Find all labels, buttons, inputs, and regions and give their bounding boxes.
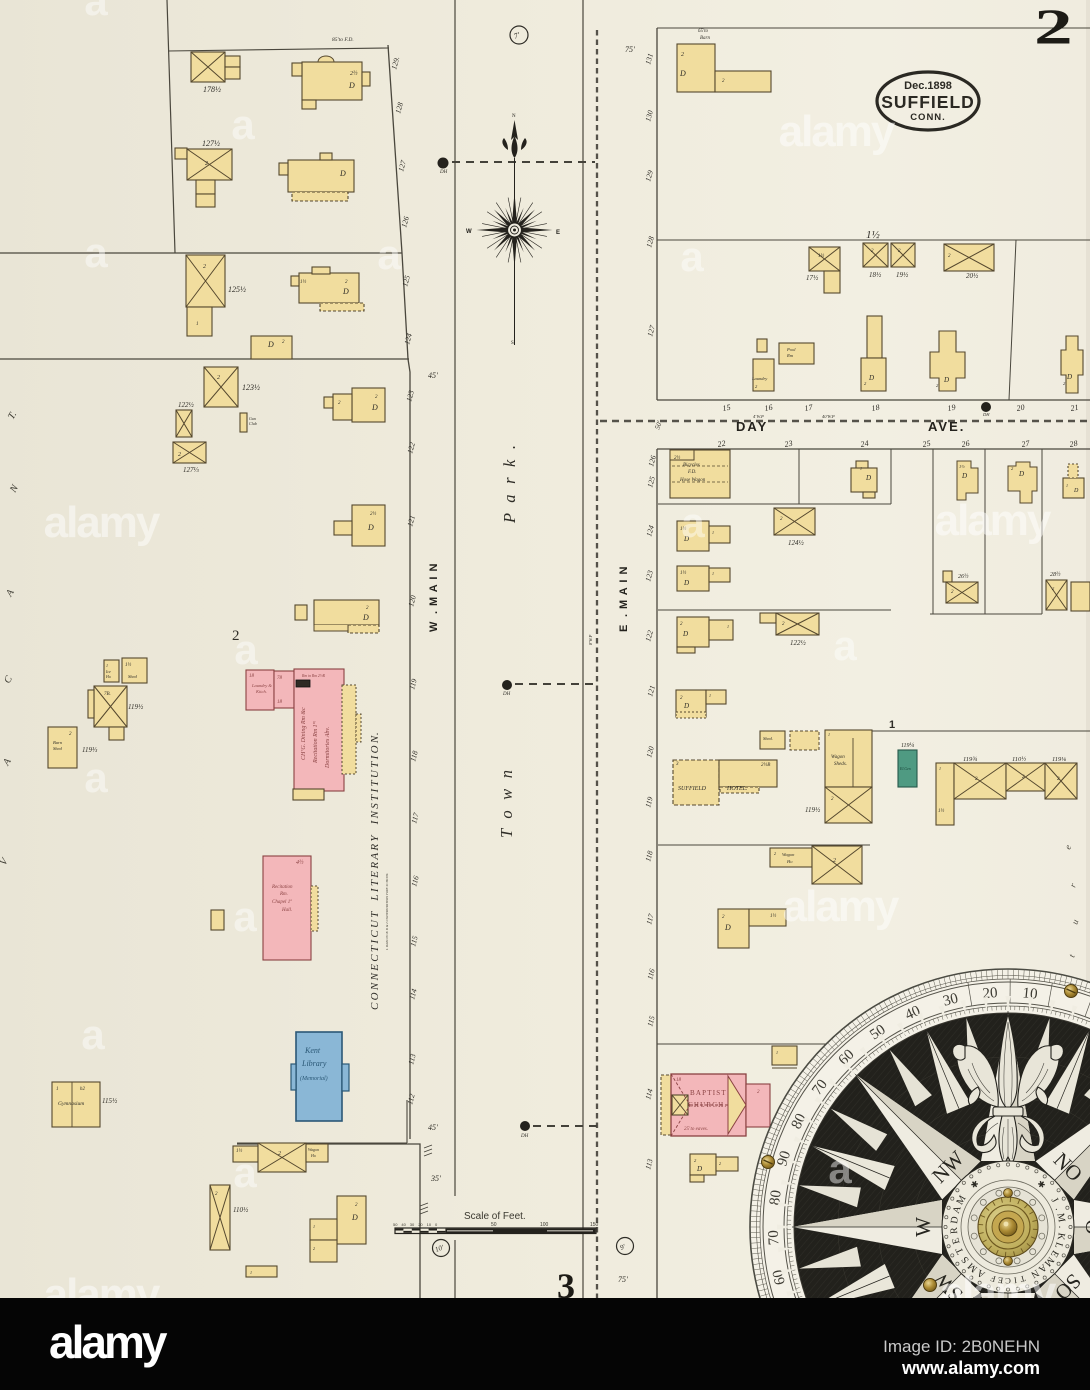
svg-text:115½: 115½: [102, 1097, 118, 1105]
svg-text:22: 22: [717, 439, 726, 449]
svg-text:1: 1: [828, 732, 830, 737]
svg-text:1: 1: [776, 1050, 778, 1055]
svg-text:D: D: [961, 472, 967, 480]
svg-text:20: 20: [418, 1222, 423, 1227]
svg-text:1: 1: [196, 322, 199, 327]
svg-text:Wagon: Wagon: [831, 755, 845, 760]
svg-text:SUFFIELD: SUFFIELD: [881, 92, 975, 112]
svg-text:Dec.1898: Dec.1898: [904, 80, 952, 92]
svg-text:a: a: [233, 893, 257, 940]
svg-text:Scale of Feet.: Scale of Feet.: [464, 1211, 526, 1222]
svg-text:Image ID: 2B0NEHN: Image ID: 2B0NEHN: [883, 1337, 1040, 1356]
svg-text:D: D: [682, 630, 688, 638]
svg-text:Laundry &: Laundry &: [251, 683, 272, 688]
svg-text:2½: 2½: [350, 70, 358, 77]
svg-text:M A I N: M A I N: [618, 566, 630, 609]
svg-text:2½B: 2½B: [761, 763, 770, 768]
svg-text:75': 75': [618, 1275, 628, 1284]
svg-text:DH: DH: [439, 170, 448, 175]
svg-text:1½: 1½: [125, 663, 132, 668]
svg-text:DAY: DAY: [736, 419, 768, 434]
svg-text:h2: h2: [80, 1087, 86, 1092]
svg-text:Gymnasium: Gymnasium: [58, 1101, 84, 1107]
svg-text:20½: 20½: [966, 272, 979, 280]
svg-text:18: 18: [277, 700, 283, 705]
svg-text:M A I N: M A I N: [428, 563, 440, 606]
svg-text:R: R: [949, 1227, 960, 1235]
svg-text:127½: 127½: [202, 139, 220, 148]
svg-text:50: 50: [393, 1222, 398, 1227]
svg-text:.: .: [428, 611, 440, 614]
svg-text:15: 15: [722, 403, 731, 413]
svg-text:45': 45': [428, 1123, 438, 1132]
svg-text:1: 1: [860, 466, 862, 471]
svg-text:178½: 178½: [203, 85, 221, 94]
svg-text:.: .: [1056, 1226, 1067, 1229]
svg-text:DH: DH: [502, 692, 511, 697]
svg-text:Wagon: Wagon: [782, 852, 795, 857]
svg-text:1: 1: [712, 530, 714, 535]
svg-text:a: a: [681, 499, 705, 546]
svg-text:D: D: [362, 613, 369, 622]
svg-text:T o w n: T o w n: [497, 767, 516, 838]
svg-text:25: 25: [922, 439, 931, 449]
svg-text:123½: 123½: [242, 383, 260, 392]
svg-text:DH: DH: [982, 412, 990, 417]
svg-text:D: D: [949, 1216, 961, 1225]
svg-text:1: 1: [712, 571, 714, 576]
svg-text:1: 1: [939, 766, 941, 771]
svg-text:a: a: [833, 622, 857, 669]
svg-text:C O N N E C T I C U T L I T: C O N N E C T I C U T L I T E R A R Y I …: [369, 732, 381, 1010]
svg-text:D: D: [679, 69, 686, 78]
svg-text:2: 2: [681, 52, 684, 58]
svg-text:Shed.: Shed.: [763, 736, 773, 741]
svg-text:Hall.: Hall.: [281, 908, 292, 913]
svg-text:122½: 122½: [790, 639, 807, 647]
svg-text:50: 50: [491, 1222, 497, 1228]
svg-text:D: D: [1073, 488, 1079, 494]
svg-text:65'to: 65'to: [698, 29, 708, 34]
svg-text:2½: 2½: [674, 456, 681, 461]
svg-text:a: a: [680, 233, 704, 280]
svg-text:1: 1: [709, 693, 711, 698]
svg-text:18: 18: [676, 1078, 682, 1083]
svg-text:1: 1: [106, 663, 108, 668]
svg-text:Hose Wagon: Hose Wagon: [679, 478, 706, 483]
svg-text:a: a: [377, 231, 401, 278]
svg-text:alamy: alamy: [779, 107, 896, 156]
svg-text:Ho: Ho: [786, 859, 793, 864]
svg-text:D: D: [683, 579, 689, 587]
svg-text:4½: 4½: [296, 859, 304, 866]
svg-text:40: 40: [401, 1222, 406, 1227]
svg-text:Kent: Kent: [304, 1046, 321, 1055]
svg-text:D: D: [348, 81, 355, 90]
svg-text:2: 2: [774, 851, 776, 856]
svg-text:1: 1: [56, 1087, 59, 1092]
svg-text:150: 150: [590, 1222, 599, 1228]
svg-text:D: D: [1018, 470, 1024, 478]
svg-text:D: D: [371, 403, 378, 412]
svg-text:CHURCH.: CHURCH.: [688, 1101, 727, 1109]
svg-text:Bicycles: Bicycles: [683, 463, 700, 468]
svg-text:Rm.: Rm.: [279, 892, 288, 897]
svg-text:D: D: [267, 340, 274, 349]
svg-text:2: 2: [205, 161, 208, 167]
svg-text:D: D: [865, 474, 871, 482]
svg-text:85'to F.D.: 85'to F.D.: [332, 37, 354, 43]
svg-text:Shed: Shed: [128, 674, 137, 679]
svg-text:Chapel 1º: Chapel 1º: [272, 899, 292, 905]
svg-text:1½: 1½: [680, 571, 687, 576]
svg-text:2: 2: [178, 452, 181, 458]
svg-text:119¾: 119¾: [963, 756, 977, 763]
svg-text:Dormitories Abv.: Dormitories Abv.: [325, 727, 331, 769]
svg-text:1½: 1½: [866, 229, 880, 241]
svg-text:2: 2: [719, 1161, 721, 1166]
svg-text:I. BABCOCK B & I UNDERWRITE: I. BABCOCK B & I UNDERWRITERS FIRE SCHOO…: [385, 873, 389, 951]
svg-text:D: D: [683, 702, 689, 710]
svg-text:Rm in Rm 2½R: Rm in Rm 2½R: [301, 674, 326, 678]
svg-text:119½: 119½: [805, 806, 821, 814]
svg-text:25' to eaves.: 25' to eaves.: [684, 1127, 708, 1132]
svg-text:4' W.P: 4' W.P: [753, 414, 764, 419]
svg-text:D: D: [342, 287, 349, 296]
svg-text:Barn: Barn: [53, 740, 63, 745]
svg-text:Recitation: Recitation: [271, 885, 293, 890]
svg-text:2½: 2½: [370, 512, 377, 517]
svg-text:45': 45': [428, 371, 438, 380]
svg-text:O: O: [1081, 1219, 1090, 1234]
svg-text:Pool: Pool: [786, 347, 796, 352]
svg-text:Kitch.: Kitch.: [255, 689, 267, 694]
svg-text:19½: 19½: [896, 271, 909, 279]
svg-text:W: W: [911, 1217, 935, 1237]
svg-text:D: D: [339, 169, 346, 178]
svg-text:CONN.: CONN.: [910, 112, 946, 123]
svg-text:D: D: [696, 1165, 702, 1173]
svg-text:a: a: [231, 101, 255, 148]
svg-text:1½: 1½: [959, 464, 965, 469]
svg-text:W: W: [466, 229, 472, 235]
svg-text:18: 18: [249, 674, 255, 679]
svg-text:1½: 1½: [770, 914, 777, 919]
svg-text:23: 23: [784, 439, 793, 449]
svg-text:F.D.: F.D.: [687, 470, 697, 475]
svg-text:Recitation Rm 1ºᵗ: Recitation Rm 1ºᵗ: [313, 720, 319, 764]
svg-text:1: 1: [250, 1270, 252, 1275]
svg-text:Barn: Barn: [700, 36, 711, 41]
svg-text:AVE.: AVE.: [928, 419, 965, 434]
svg-text:HOTEL.: HOTEL.: [726, 786, 748, 792]
svg-text:Wagon: Wagon: [308, 1147, 319, 1152]
svg-text:Rm: Rm: [786, 353, 794, 358]
svg-text:www.alamy.com: www.alamy.com: [901, 1358, 1040, 1378]
svg-text:28: 28: [1069, 439, 1078, 449]
svg-text:110½: 110½: [1012, 756, 1026, 763]
svg-text:a: a: [84, 754, 108, 801]
svg-text:28½: 28½: [1050, 571, 1061, 578]
svg-text:Ho: Ho: [310, 1153, 316, 1158]
svg-text:DH: DH: [520, 1134, 529, 1139]
svg-text:1½: 1½: [818, 254, 825, 259]
svg-text:1: 1: [889, 719, 895, 731]
svg-text:119⅓: 119⅓: [82, 746, 98, 754]
svg-text:a: a: [84, 229, 108, 276]
svg-text:26: 26: [961, 439, 970, 449]
svg-text:W: W: [428, 621, 440, 632]
svg-text:P a r k .: P a r k .: [500, 442, 519, 524]
svg-text:Laundry: Laundry: [751, 376, 767, 381]
svg-text:2: 2: [833, 858, 836, 864]
svg-text:124½: 124½: [788, 539, 805, 547]
svg-text:Shed: Shed: [53, 746, 62, 751]
svg-text:alamy: alamy: [935, 496, 1052, 545]
svg-text:119¼: 119¼: [901, 743, 915, 749]
svg-text:19: 19: [947, 403, 956, 413]
svg-text:N: N: [512, 114, 516, 119]
svg-text:a: a: [234, 626, 258, 673]
svg-text:17½: 17½: [806, 274, 819, 282]
svg-text:40'W.P: 40'W.P: [822, 414, 835, 419]
svg-text:2: 2: [278, 1151, 281, 1157]
svg-text:D: D: [943, 376, 949, 384]
svg-text:35': 35': [430, 1174, 441, 1183]
svg-text:D: D: [367, 523, 374, 532]
svg-text:100: 100: [540, 1222, 549, 1228]
svg-text:a: a: [84, 0, 108, 24]
svg-text:a: a: [828, 1145, 852, 1192]
svg-text:70: 70: [766, 1230, 783, 1246]
svg-text:21: 21: [1070, 403, 1079, 413]
svg-text:26½: 26½: [958, 573, 969, 580]
svg-text:D: D: [1066, 373, 1072, 381]
svg-text:127⅓: 127⅓: [183, 466, 200, 474]
svg-text:alamy: alamy: [49, 1316, 168, 1368]
svg-text:Ho: Ho: [105, 674, 111, 679]
svg-text:(Memorial): (Memorial): [300, 1075, 328, 1082]
svg-text:78: 78: [277, 676, 283, 681]
svg-text:122½: 122½: [178, 401, 195, 409]
svg-text:Sheds.: Sheds.: [834, 762, 847, 767]
svg-text:2: 2: [313, 1246, 315, 1251]
svg-text:125½: 125½: [228, 285, 246, 294]
svg-text:18½: 18½: [869, 271, 882, 279]
svg-text:a: a: [233, 1149, 257, 1196]
svg-text:18: 18: [871, 403, 880, 413]
svg-text:2: 2: [203, 264, 206, 270]
svg-text:a: a: [81, 1011, 105, 1058]
svg-text:30: 30: [410, 1222, 415, 1227]
svg-text:1½: 1½: [300, 280, 307, 285]
svg-text:8'W.P: 8'W.P: [588, 634, 593, 645]
svg-text:1: 1: [1066, 483, 1068, 488]
svg-text:16: 16: [764, 403, 773, 413]
svg-text:CH’G. Dining Rm &c: CH’G. Dining Rm &c: [301, 707, 307, 760]
svg-text:alamy: alamy: [783, 882, 900, 931]
svg-text:2: 2: [217, 375, 220, 381]
svg-text:110½: 110½: [233, 1206, 249, 1214]
svg-text:2: 2: [1034, 0, 1073, 55]
svg-text:24: 24: [860, 439, 869, 449]
svg-text:D: D: [351, 1213, 358, 1222]
svg-text:.: .: [618, 614, 630, 617]
svg-text:1: 1: [313, 1224, 315, 1229]
svg-text:BAPTIST: BAPTIST: [690, 1089, 727, 1097]
svg-text:SUFFIELD: SUFFIELD: [678, 786, 707, 792]
svg-text:10: 10: [427, 1222, 432, 1227]
svg-text:D: D: [868, 374, 874, 382]
svg-text:Library: Library: [301, 1059, 327, 1068]
svg-text:7B.: 7B.: [104, 692, 111, 697]
svg-text:D: D: [724, 923, 731, 932]
svg-text:119½: 119½: [128, 703, 144, 711]
svg-text:1½: 1½: [938, 809, 945, 814]
svg-text:S: S: [511, 341, 514, 346]
svg-text:E: E: [556, 230, 560, 236]
svg-text:1: 1: [727, 624, 729, 629]
svg-text:119⅛: 119⅛: [1052, 756, 1066, 763]
svg-text:E: E: [618, 625, 630, 632]
svg-text:El.Gen: El.Gen: [899, 767, 911, 771]
svg-text:75': 75': [625, 45, 635, 54]
svg-text:alamy: alamy: [44, 498, 161, 547]
svg-text:Club: Club: [249, 421, 257, 426]
svg-text:20: 20: [1016, 403, 1025, 413]
